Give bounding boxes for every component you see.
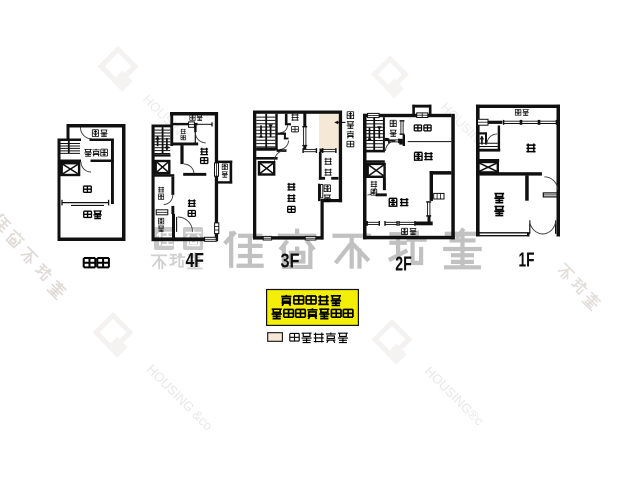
svg-text:HOUSING &co: HOUSING &co [144, 362, 216, 434]
svg-text:4F: 4F [186, 249, 205, 272]
svg-text:1F: 1F [519, 249, 535, 272]
svg-text:3F: 3F [281, 250, 300, 273]
svg-text:2F: 2F [395, 253, 412, 276]
svg-text:HOUSING®c: HOUSING®c [422, 364, 487, 429]
